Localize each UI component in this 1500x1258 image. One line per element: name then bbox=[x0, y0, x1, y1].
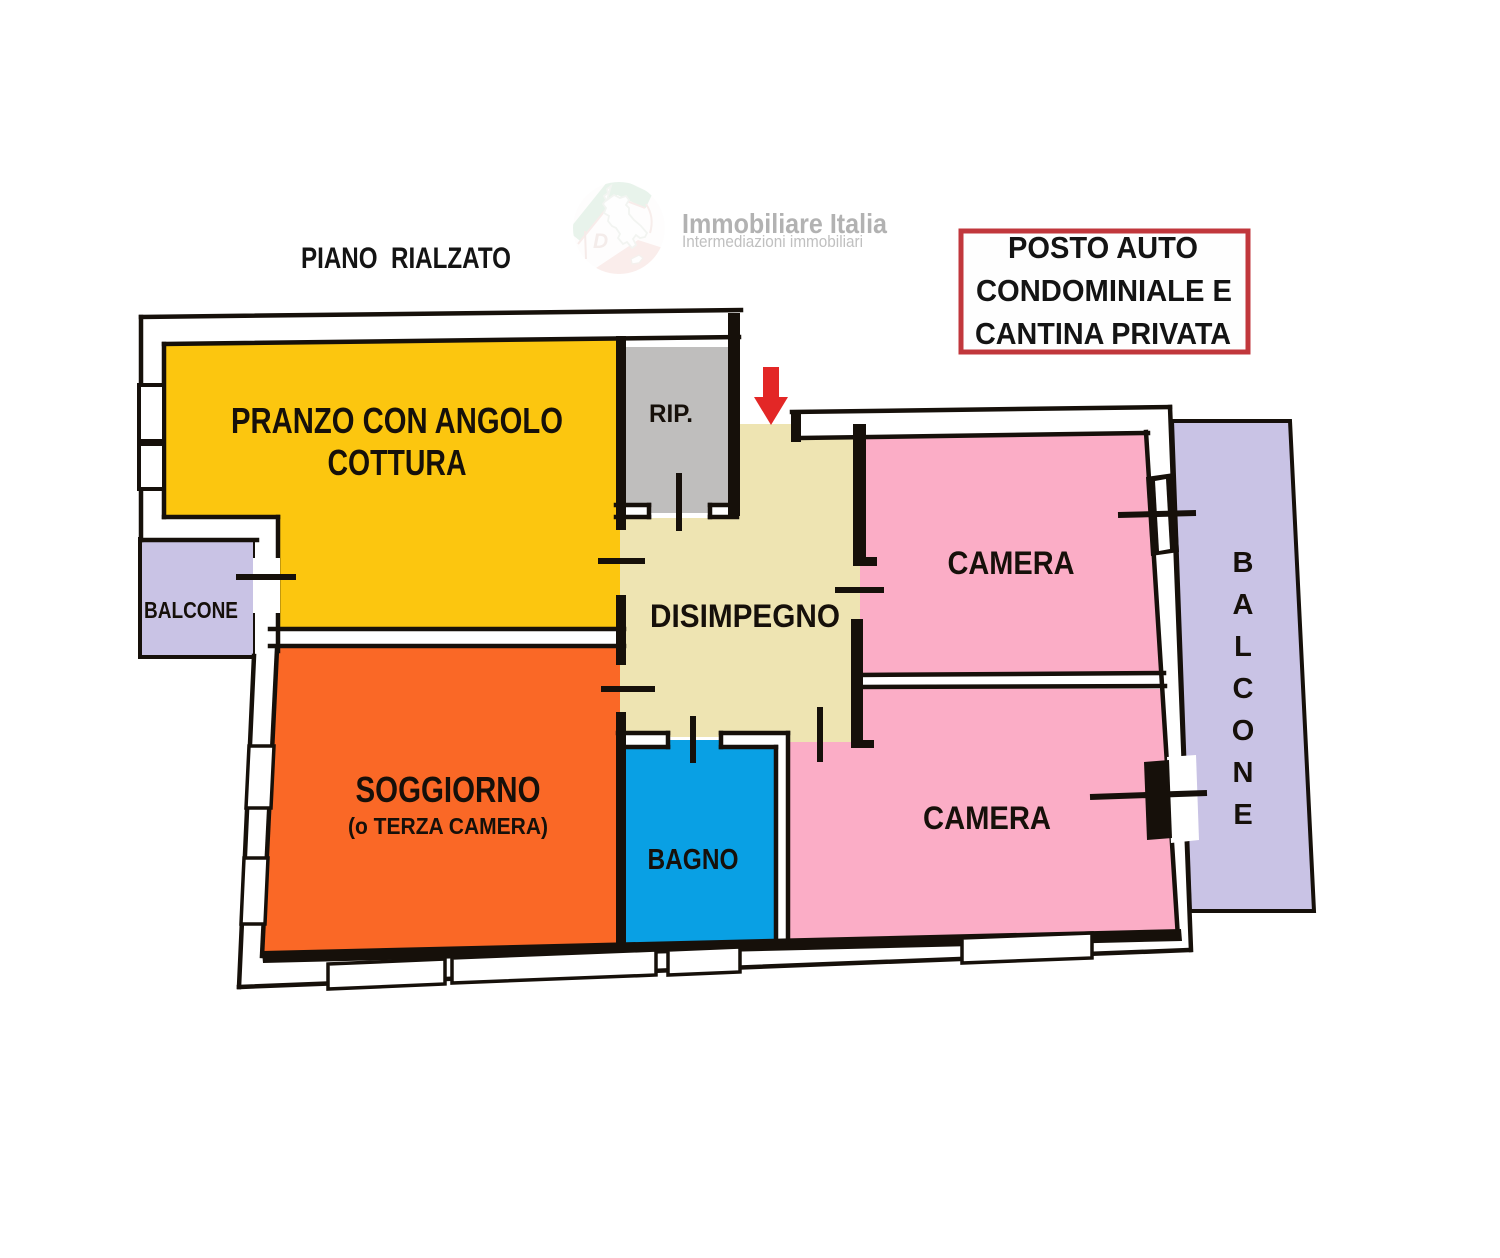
svg-text:L: L bbox=[1234, 631, 1252, 663]
svg-text:Intermediazioni immobiliari: Intermediazioni immobiliari bbox=[682, 232, 863, 251]
svg-text:DISIMPEGNO: DISIMPEGNO bbox=[650, 598, 840, 634]
svg-text:E: E bbox=[1233, 799, 1252, 831]
svg-text:CAMERA: CAMERA bbox=[923, 800, 1051, 836]
svg-text:BALCONE: BALCONE bbox=[144, 597, 238, 623]
svg-text:POSTO AUTO: POSTO AUTO bbox=[1008, 230, 1198, 265]
svg-text:RIP.: RIP. bbox=[649, 400, 693, 428]
svg-text:CANTINA PRIVATA: CANTINA PRIVATA bbox=[975, 316, 1231, 351]
svg-text:N: N bbox=[1233, 757, 1254, 789]
svg-text:(o TERZA CAMERA): (o TERZA CAMERA) bbox=[348, 813, 548, 839]
svg-text:PRANZO CON ANGOLO: PRANZO CON ANGOLO bbox=[231, 400, 563, 441]
svg-text:C: C bbox=[1233, 673, 1254, 705]
svg-text:BAGNO: BAGNO bbox=[648, 844, 739, 876]
svg-text:PIANO RIALZATO: PIANO RIALZATO bbox=[301, 242, 511, 275]
svg-text:O: O bbox=[1232, 715, 1255, 747]
svg-text:SOGGIORNO: SOGGIORNO bbox=[356, 769, 541, 810]
svg-text:B: B bbox=[1233, 547, 1254, 579]
svg-text:COTTURA: COTTURA bbox=[328, 442, 467, 483]
svg-text:A: A bbox=[1233, 589, 1254, 621]
svg-text:D: D bbox=[593, 230, 608, 253]
svg-text:CONDOMINIALE E: CONDOMINIALE E bbox=[976, 273, 1232, 308]
svg-text:CAMERA: CAMERA bbox=[948, 545, 1075, 581]
